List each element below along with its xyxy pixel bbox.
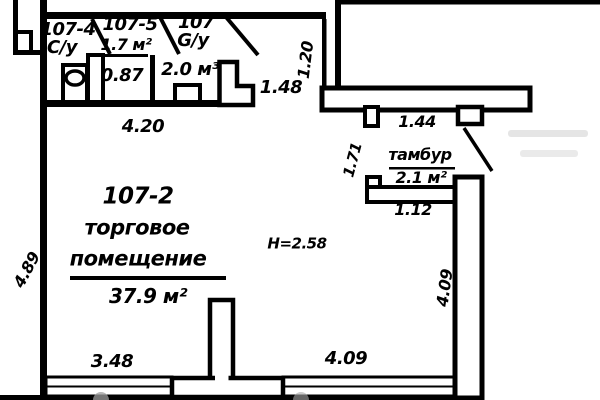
vent-shaft (220, 62, 254, 105)
entrance-pier (458, 107, 482, 124)
dim-0-87: 0.87 (101, 67, 143, 85)
leader-line-3 (226, 17, 258, 55)
room-107-5-area: 1.7 м² (101, 37, 152, 53)
watermark-smudge-2 (520, 150, 578, 157)
strip-right-wall-inner (322, 19, 327, 94)
tambour-area: 2.1 м² (396, 170, 447, 186)
left-shaft-detail-v (29, 30, 33, 52)
dim-1-20: 1.20 (296, 40, 316, 79)
column-pier-join (215, 372, 229, 384)
room-107-volume: 2.0 м³ (161, 61, 219, 79)
dim-4-09-bottom: 4.09 (325, 350, 367, 368)
room-107-type: G/у (177, 32, 209, 50)
dim-3-48: 3.48 (91, 353, 133, 371)
porch-stub-pier (365, 107, 378, 126)
underline-main-room (70, 276, 226, 280)
left-shaft-outer (13, 0, 18, 55)
dim-1-44: 1.44 (398, 114, 435, 130)
leader-line-2 (160, 17, 179, 54)
ceiling-height: H=2.58 (267, 237, 326, 252)
main-room-name-1: торговое (85, 218, 190, 239)
door-swing (464, 128, 492, 171)
sink (175, 85, 200, 102)
partition-107-5 (150, 55, 155, 102)
main-room-number: 107-2 (102, 186, 173, 209)
dim-4-20: 4.20 (122, 118, 164, 136)
strip-right-wall-outer (335, 0, 341, 92)
tambour-name: тамбур (388, 147, 451, 163)
left-wall (40, 0, 47, 400)
watermark-smudge-1 (508, 130, 588, 137)
room-107-5-number: 107-5 (102, 16, 157, 34)
dim-1-12: 1.12 (394, 202, 431, 218)
porch-wall (322, 88, 530, 110)
underline-area-107-5 (104, 54, 148, 57)
floor-plan: 107-4 С/у 107-5 1.7 м² 0.87 107 G/у 2.0 … (0, 0, 600, 400)
room-107-4-type: С/у (47, 39, 77, 57)
right-wall (455, 177, 482, 398)
main-room-name-2: помещение (70, 249, 207, 270)
main-room-area: 37.9 м² (109, 286, 187, 306)
toilet-bowl (66, 71, 84, 85)
dim-1-48: 1.48 (260, 79, 302, 97)
top-right-outer-wall (335, 0, 600, 5)
